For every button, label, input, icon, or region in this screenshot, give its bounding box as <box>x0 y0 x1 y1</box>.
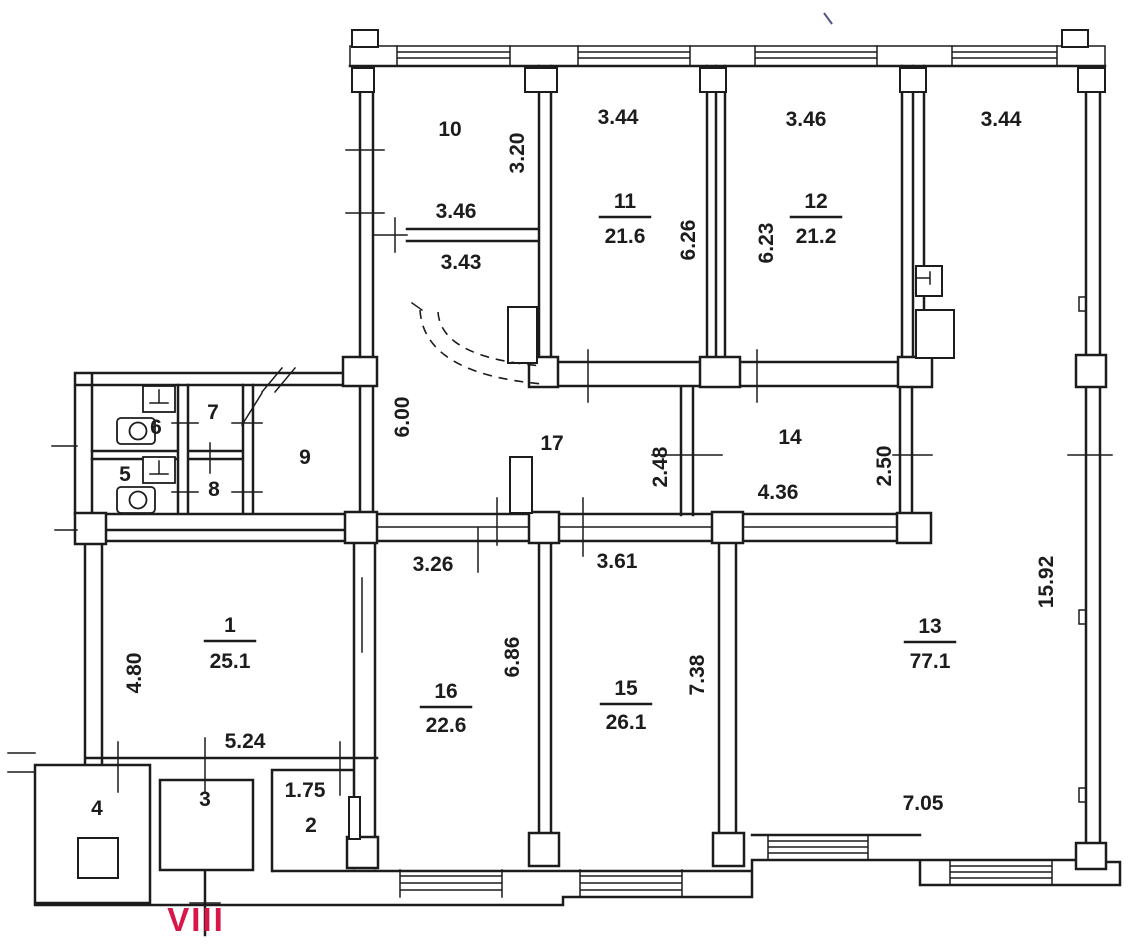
room-10-number: 10 <box>438 118 461 141</box>
sink-icon <box>143 457 175 483</box>
dim-room16-top: 3.26 <box>413 553 454 576</box>
room-1-area: 25.1 <box>210 650 251 673</box>
dim-room1-width: 5.24 <box>225 730 266 753</box>
dim-room11-top: 3.44 <box>598 106 639 129</box>
room-17-number: 17 <box>540 432 563 455</box>
door-swing-marks <box>242 368 295 425</box>
room-11-number: 11 <box>614 190 637 213</box>
area-fraction-bars <box>205 217 955 707</box>
floorplan-page: 3.44 3.46 3.44 10 3.20 3.46 3.43 11 21.6… <box>0 0 1138 950</box>
dim-room16-height: 6.86 <box>501 637 524 678</box>
dim-corridor-width: 2.48 <box>649 446 672 487</box>
sink-icon <box>143 386 175 412</box>
dim-room12-top: 3.46 <box>786 108 827 131</box>
room-12-area: 21.2 <box>796 225 837 248</box>
entry-rooms <box>35 765 253 903</box>
room-16-number: 16 <box>434 680 457 703</box>
room-8-number: 8 <box>208 478 220 501</box>
section-viii-label: VIII <box>167 901 225 938</box>
room-11-area: 21.6 <box>605 225 646 248</box>
room-16-area: 22.6 <box>426 714 467 737</box>
room-5-number: 5 <box>119 463 131 486</box>
room-14-number: 14 <box>778 426 802 449</box>
room-13-area: 77.1 <box>910 650 951 673</box>
bathroom-fixtures <box>117 386 175 513</box>
dim-room11-height: 6.26 <box>677 220 700 261</box>
dim-room15-top: 3.61 <box>597 550 638 573</box>
room-4-number: 4 <box>91 797 103 820</box>
room-3-number: 3 <box>199 788 211 811</box>
room-15-number: 15 <box>614 677 638 700</box>
dim-corridor-height: 6.00 <box>391 397 414 438</box>
dim-room1-height: 4.80 <box>123 653 146 694</box>
room-13-number: 13 <box>918 615 941 638</box>
room-7-number: 7 <box>207 401 219 424</box>
room-9-number: 9 <box>299 446 311 469</box>
exterior-walls <box>35 46 1120 905</box>
dim-room2-width: 1.75 <box>285 779 326 802</box>
room-12-number: 12 <box>804 190 827 213</box>
window-symbols <box>397 46 1057 897</box>
dim-room13-width: 7.05 <box>903 792 944 815</box>
room-15-area: 26.1 <box>606 711 647 734</box>
toilet-icon <box>117 487 155 513</box>
dim-room12-height: 6.23 <box>755 223 778 264</box>
pen-mark <box>824 13 832 24</box>
room-6-number: 6 <box>150 416 162 439</box>
dim-room10-w2: 3.43 <box>441 251 482 274</box>
dim-room13-top: 3.44 <box>981 108 1022 131</box>
dim-room14-height: 2.50 <box>873 446 896 487</box>
dim-room10-w1: 3.46 <box>436 200 477 223</box>
room-1-number: 1 <box>224 614 236 637</box>
dim-room14-width: 4.36 <box>758 481 799 504</box>
floorplan-drawing: 3.44 3.46 3.44 10 3.20 3.46 3.43 11 21.6… <box>0 0 1138 950</box>
dim-right-height: 15.92 <box>1035 556 1058 609</box>
dim-room10-height: 3.20 <box>506 133 529 174</box>
dim-room15-height: 7.38 <box>686 654 709 695</box>
room-2-number: 2 <box>305 814 317 837</box>
